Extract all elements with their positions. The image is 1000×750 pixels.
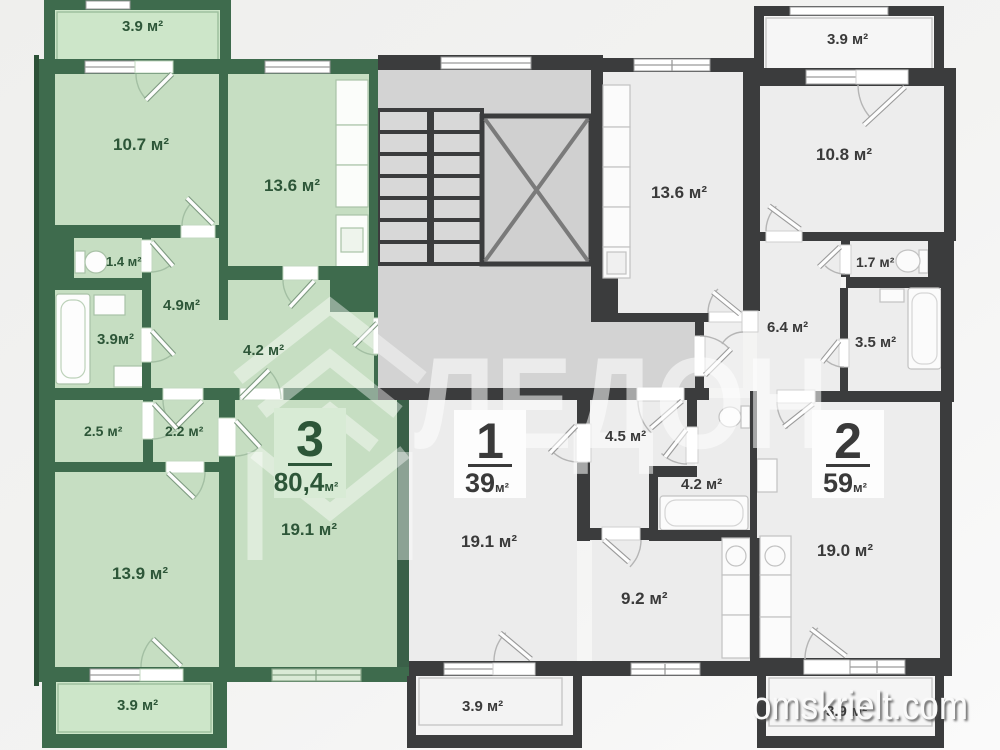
svg-text:19.0 м²: 19.0 м² (817, 541, 873, 560)
svg-text:10.8 м²: 10.8 м² (816, 145, 872, 164)
svg-text:1.4 м²: 1.4 м² (106, 254, 142, 269)
svg-text:omskrielt.com: omskrielt.com (752, 684, 968, 728)
svg-text:3.9м²: 3.9м² (97, 331, 134, 348)
svg-text:3: 3 (296, 411, 324, 467)
svg-text:1.7 м²: 1.7 м² (856, 254, 895, 270)
svg-text:4.2 м²: 4.2 м² (681, 476, 722, 493)
svg-text:9.2 м²: 9.2 м² (621, 589, 668, 608)
svg-text:4.2 м²: 4.2 м² (243, 342, 284, 359)
svg-text:2.5 м²: 2.5 м² (84, 423, 123, 439)
svg-text:6.4 м²: 6.4 м² (767, 319, 808, 336)
svg-text:13.6 м²: 13.6 м² (264, 176, 320, 195)
svg-text:1: 1 (476, 413, 504, 469)
svg-text:13.9 м²: 13.9 м² (112, 564, 168, 583)
svg-text:3.9 м²: 3.9 м² (827, 31, 868, 48)
svg-text:3.9 м²: 3.9 м² (122, 18, 163, 35)
svg-text:19.1 м²: 19.1 м² (281, 520, 337, 539)
svg-text:10.7 м²: 10.7 м² (113, 135, 169, 154)
svg-text:4.5 м²: 4.5 м² (605, 428, 646, 445)
svg-text:3.9 м²: 3.9 м² (117, 697, 158, 714)
svg-text:4.9м²: 4.9м² (163, 297, 200, 314)
svg-text:13.6 м²: 13.6 м² (651, 183, 707, 202)
svg-text:3.9 м²: 3.9 м² (462, 698, 503, 715)
svg-text:2: 2 (834, 413, 862, 469)
svg-text:3.5 м²: 3.5 м² (855, 334, 896, 351)
svg-text:2.2 м²: 2.2 м² (165, 423, 204, 439)
svg-text:19.1 м²: 19.1 м² (461, 532, 517, 551)
